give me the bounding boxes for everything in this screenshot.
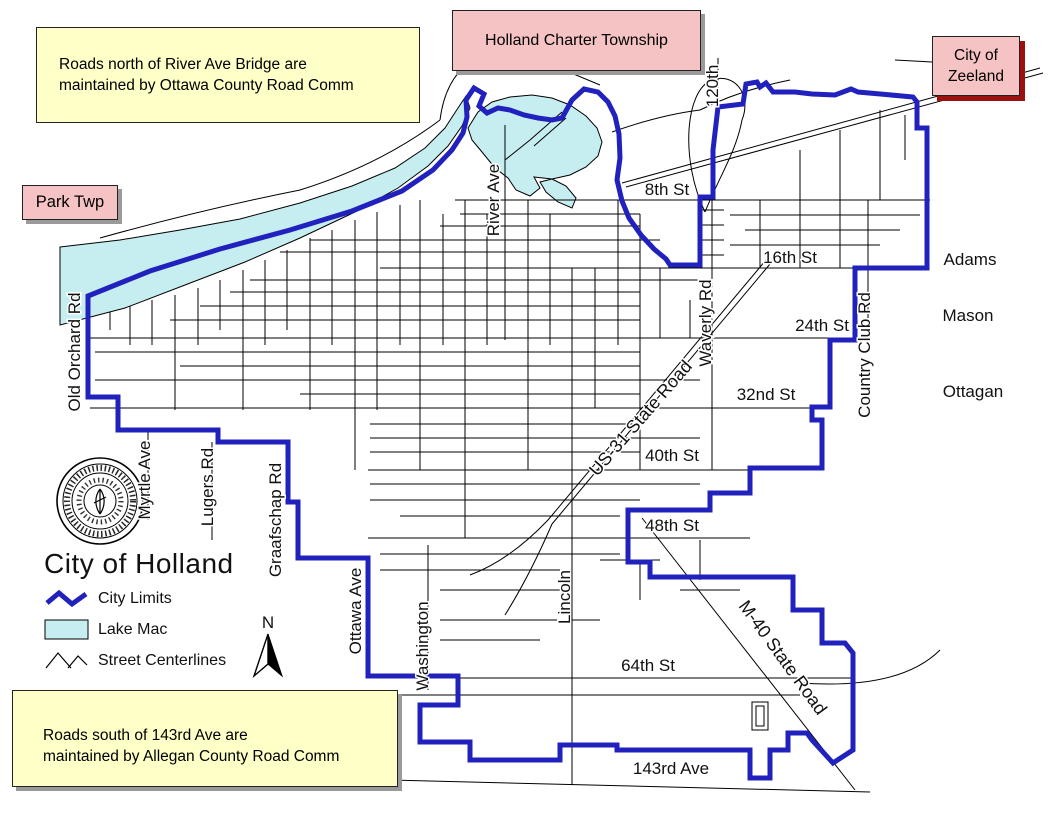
road-label-40th-st: 40th St [645, 446, 699, 465]
road-label-48th-st: 48th St [645, 516, 699, 535]
legend-label-street-centerlines: Street Centerlines [98, 652, 226, 670]
holland-charter-township-label: Holland Charter Township [485, 32, 668, 50]
note-north-line1: Roads north of River Ave Bridge are [59, 54, 354, 75]
note-south-line2: maintained by Allegan County Road Comm [43, 746, 339, 767]
map-legend: City of Holland City Limits Lake Mac Str… [44, 548, 234, 673]
road-label-lincoln: Lincoln [555, 570, 574, 624]
road-label-river-ave: River Ave [484, 164, 503, 236]
road-label-lugers-rd: Lugers Rd [198, 448, 217, 526]
holland-city-map: N 8th St 16th St 24th St 32nd St 40th St… [0, 0, 1056, 816]
legend-label-lake-mac: Lake Mac [98, 621, 167, 639]
note-south-line1: Roads south of 143rd Ave are [43, 725, 339, 746]
road-label-ottawa-ave: Ottawa Ave [346, 568, 365, 655]
city-of-zeeland-line2: Zeeland [948, 68, 1004, 85]
holland-charter-township-box: Holland Charter Township [452, 10, 701, 71]
north-arrow: N [254, 613, 282, 676]
road-label-waverly-rd: Waverly Rd [696, 279, 715, 366]
road-label-mason: Mason [942, 306, 993, 325]
note-south-box: Roads south of 143rd Ave are maintained … [12, 690, 398, 787]
legend-item-street-centerlines: Street Centerlines [44, 649, 234, 673]
north-arrow-label: N [262, 613, 274, 632]
road-label-myrtle-ave: Myrtle Ave [135, 440, 154, 519]
road-label-m40-state-road: M-40 State Road [735, 597, 831, 719]
road-label-64th-st: 64th St [621, 656, 675, 675]
lake-macatawa [60, 95, 602, 325]
road-label-120th: 120th [703, 65, 722, 108]
road-label-ottagan: Ottagan [943, 382, 1004, 401]
city-seal [57, 458, 143, 544]
note-north-line2: maintained by Ottawa County Road Comm [59, 75, 354, 96]
street-centerlines-swatch-icon [44, 649, 90, 673]
road-label-143rd-ave: 143rd Ave [633, 759, 709, 778]
city-limits-swatch-icon [44, 587, 90, 611]
legend-label-city-limits: City Limits [98, 590, 172, 608]
city-of-zeeland-line1: City of [954, 47, 998, 64]
road-label-8th-st: 8th St [645, 180, 690, 199]
legend-item-city-limits: City Limits [44, 587, 234, 611]
legend-item-lake-mac: Lake Mac [44, 618, 234, 642]
road-label-old-orchard-rd: Old Orchard Rd [65, 292, 84, 411]
road-label-washington: Washington [413, 601, 432, 690]
city-of-zeeland-box: City of Zeeland [932, 36, 1020, 96]
road-label-24th-st: 24th St [795, 316, 849, 335]
road-label-32nd-st: 32nd St [737, 385, 796, 404]
lake-mac-swatch-icon [44, 618, 90, 642]
road-label-graafschap-rd: Graafschap Rd [266, 463, 285, 577]
road-label-adams: Adams [944, 250, 997, 269]
park-twp-box: Park Twp [22, 185, 118, 220]
road-label-country-club-rd: Country Club Rd [855, 292, 874, 418]
note-north-box: Roads north of River Ave Bridge are main… [36, 27, 420, 123]
park-twp-label: Park Twp [36, 193, 104, 212]
legend-title: City of Holland [44, 548, 234, 580]
road-label-16th-st: 16th St [763, 248, 817, 267]
